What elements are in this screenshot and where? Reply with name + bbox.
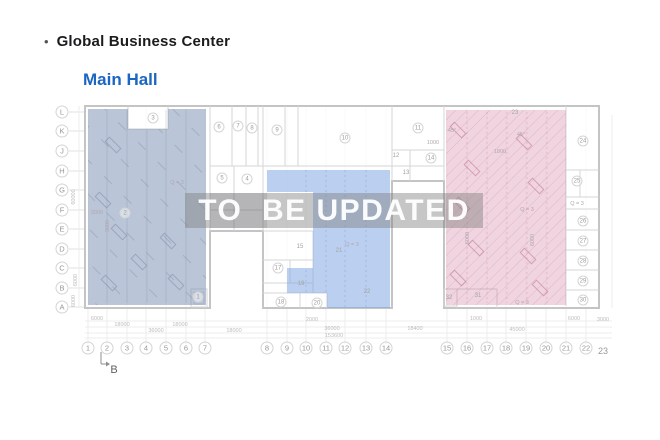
section-marker-arrow xyxy=(101,352,110,367)
page: • Global Business Center Main Hall xyxy=(0,0,660,440)
watermark-band: TO BE UPDATED xyxy=(185,193,483,228)
letter-ticks xyxy=(69,112,85,307)
watermark-text: TO BE UPDATED xyxy=(198,194,470,228)
section-marker-label: B xyxy=(110,364,117,376)
